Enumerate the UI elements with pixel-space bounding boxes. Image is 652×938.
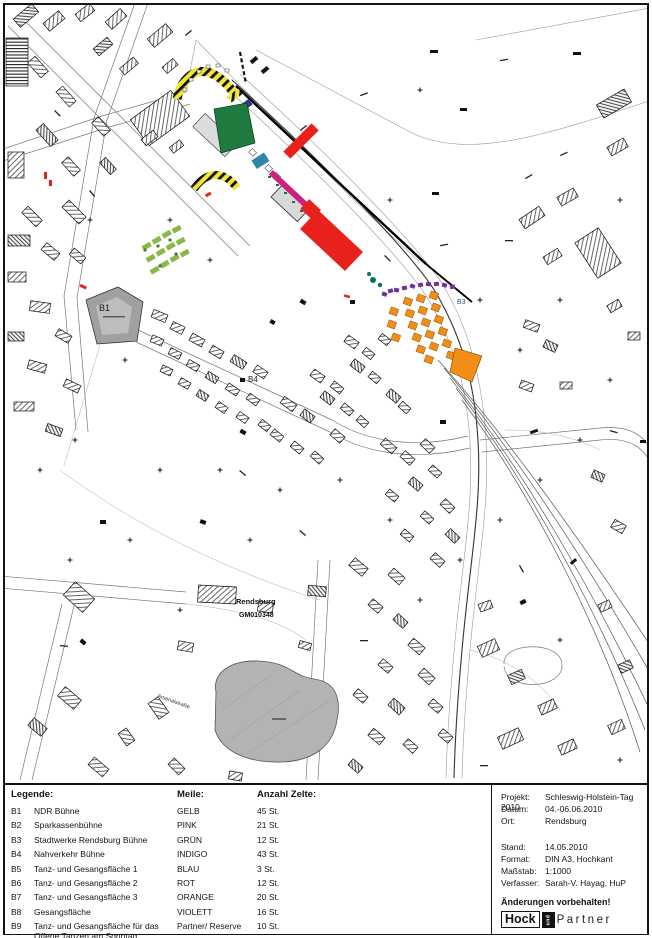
row-code: B7: [11, 892, 21, 902]
row-meile: Partner/ Reserve: [177, 921, 241, 931]
plan-page: B1 B3 B4 Rendsburg GM010348 Arsenalstraß…: [0, 0, 652, 938]
row-anzahl: 45 St.: [257, 806, 279, 816]
code-label: GM010348: [239, 612, 274, 619]
info-row: Ort:Rendsburg: [501, 816, 647, 826]
legend-table: Legende: Meile: Anzahl Zelte: B1 NDR Büh…: [5, 785, 492, 934]
logo-und: und: [542, 912, 555, 928]
small-structure: [640, 440, 646, 443]
railyard-band: [6, 38, 28, 86]
b4-label: B4: [248, 375, 258, 384]
info-value: 04.-06.06.2010: [545, 804, 602, 814]
info-row: Datum:04.-06.06.2010: [501, 804, 647, 814]
legend-panel: Legende: Meile: Anzahl Zelte: B1 NDR Büh…: [5, 783, 647, 934]
building: [14, 402, 34, 411]
building: [198, 585, 237, 604]
micro-label: [505, 240, 513, 241]
logo-partner: Partner: [557, 914, 612, 926]
legend-title: Legende:: [11, 790, 53, 800]
small-structure: [100, 520, 106, 524]
col-header-meile: Meile:: [177, 790, 204, 800]
row-code: B3: [11, 835, 21, 845]
notice-text: Änderungen vorbehalten!: [501, 897, 647, 907]
row-meile: ORANGE: [177, 892, 214, 902]
map-svg: B1 B3 B4 Rendsburg GM010348 Arsenalstraß…: [5, 5, 647, 783]
row-desc: Sparkassenbühne: [34, 820, 180, 830]
row-code: B9: [11, 921, 21, 931]
building: [560, 382, 572, 389]
info-label: Format:: [501, 854, 545, 864]
info-row: Maßstab:1:1000: [501, 866, 647, 876]
project-info-box: Projekt:Schleswig-Holstein-Tag 2010 Datu…: [493, 785, 647, 934]
row-desc: Tanz- und Gesangsfläche 1: [34, 864, 180, 874]
row-desc: Tanz- und Gesangsfläche für das Offene T…: [34, 921, 180, 938]
row-meile: BLAU: [177, 864, 199, 874]
row-desc: Stadtwerke Rendsburg Bühne: [34, 835, 180, 845]
row-anzahl: 12 St.: [257, 835, 279, 845]
b1-label: B1: [99, 303, 110, 313]
building: [8, 152, 24, 178]
row-desc: Tanz- und Gesangsfläche 2: [34, 878, 180, 888]
building: [8, 332, 24, 341]
small-structure: [350, 300, 355, 304]
info-value: 14.05.2010: [545, 842, 588, 852]
info-label: Stand:: [501, 842, 545, 852]
info-value: 1:1000: [545, 866, 571, 876]
info-value: Sarah-V. Hayag, HuP: [545, 878, 626, 888]
info-label: Ort:: [501, 816, 545, 826]
row-desc: NDR Bühne: [34, 806, 180, 816]
b4-marker: [240, 378, 245, 382]
hock-und-partner-logo: Hock und Partner: [501, 911, 612, 928]
small-structure: [440, 420, 446, 424]
micro-label: [480, 765, 488, 766]
info-label: Projekt:: [501, 792, 545, 802]
logo-hock: Hock: [501, 911, 540, 928]
row-meile: PINK: [177, 820, 197, 830]
building: [628, 332, 640, 340]
row-anzahl: 12 St.: [257, 878, 279, 888]
info-label: Verfasser:: [501, 878, 545, 888]
row-meile: GELB: [177, 806, 200, 816]
row-code: B1: [11, 806, 21, 816]
col-header-anzahl: Anzahl Zelte:: [257, 790, 316, 800]
city-map: B1 B3 B4 Rendsburg GM010348 Arsenalstraß…: [5, 5, 647, 783]
row-meile: INDIGO: [177, 849, 207, 859]
small-structure: [460, 108, 467, 111]
row-code: B6: [11, 878, 21, 888]
row-code: B5: [11, 864, 21, 874]
building: [8, 272, 26, 282]
info-row: Stand:14.05.2010: [501, 842, 647, 852]
row-anzahl: 3 St.: [257, 864, 274, 874]
small-structure: [432, 192, 439, 195]
micro-label: [360, 640, 368, 641]
info-label: Maßstab:: [501, 866, 545, 876]
row-code: B2: [11, 820, 21, 830]
row-anzahl: 20 St.: [257, 892, 279, 902]
row-code: B4: [11, 849, 21, 859]
row-anzahl: 21 St.: [257, 820, 279, 830]
info-row: Verfasser:Sarah-V. Hayag, HuP: [501, 878, 647, 888]
building: [8, 235, 30, 246]
row-anzahl: 10 St.: [257, 921, 279, 931]
small-structure: [573, 52, 581, 55]
info-label: Datum:: [501, 804, 545, 814]
small-structure: [430, 50, 438, 53]
info-row: Format:DIN A3, Hochkant: [501, 854, 647, 864]
row-meile: GRÜN: [177, 835, 202, 845]
row-meile: ROT: [177, 878, 195, 888]
building: [308, 585, 327, 597]
row-code: B8: [11, 907, 21, 917]
row-meile: VIOLETT: [177, 907, 212, 917]
info-value: Rendsburg: [545, 816, 587, 826]
row-desc: Tanz- und Gesangsfläche 3: [34, 892, 180, 902]
info-value: DIN A3, Hochkant: [545, 854, 613, 864]
b3-label: B3: [457, 299, 466, 306]
row-anzahl: 43 St.: [257, 849, 279, 859]
row-desc: Gesangsfläche: [34, 907, 180, 917]
row-desc: Nahverkehr Bühne: [34, 849, 180, 859]
row-anzahl: 16 St.: [257, 907, 279, 917]
place-label: Rendsburg: [236, 597, 276, 606]
